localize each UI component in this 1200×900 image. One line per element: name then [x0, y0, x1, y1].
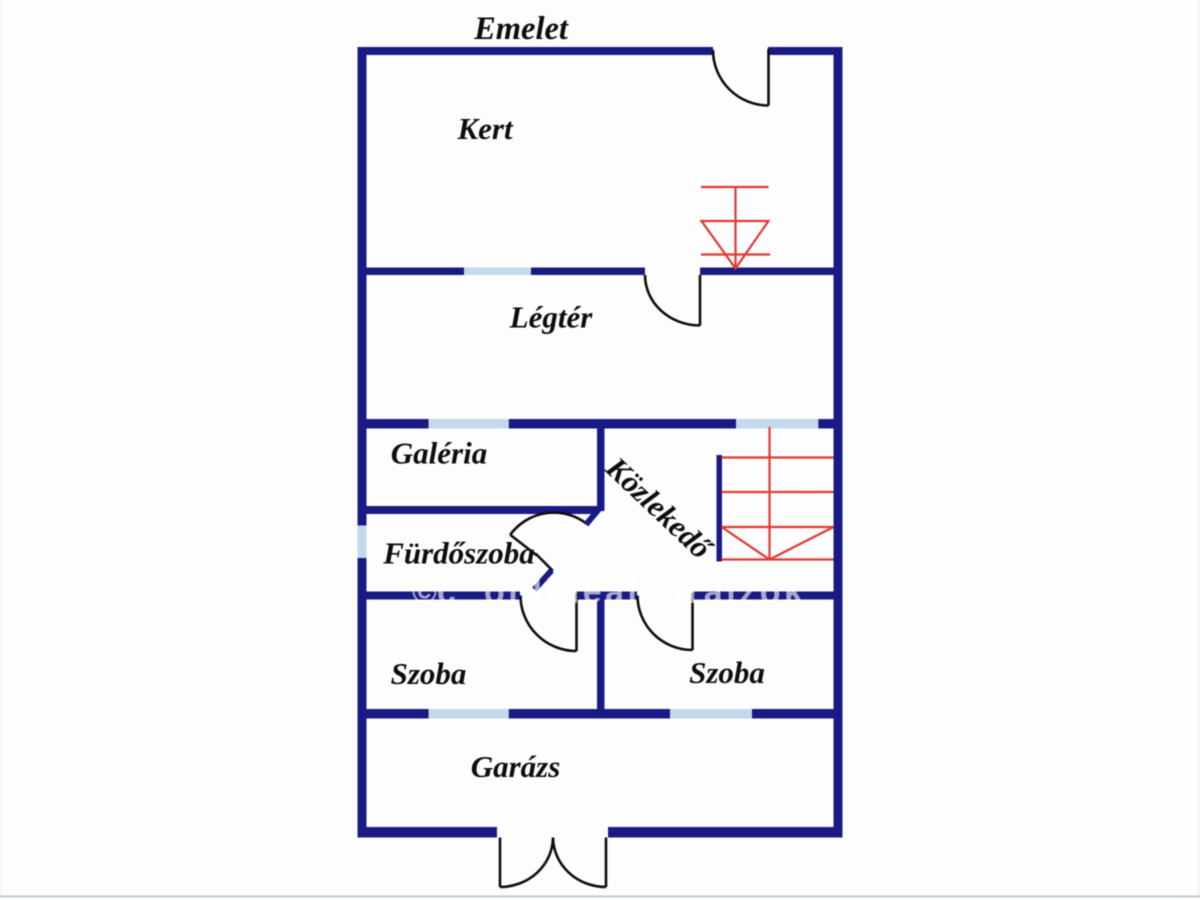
- svg-text:Emelet: Emelet: [473, 11, 569, 47]
- svg-text:onlinealaprajzok: onlinealaprajzok: [484, 573, 806, 611]
- svg-text:Fürdőszoba: Fürdőszoba: [382, 536, 535, 571]
- svg-text:Légtér: Légtér: [509, 300, 594, 335]
- svg-text:Szoba: Szoba: [391, 656, 467, 691]
- svg-text:©c: ©c: [412, 573, 456, 611]
- svg-text:Szoba: Szoba: [689, 655, 765, 690]
- svg-text:Galéria: Galéria: [391, 436, 487, 471]
- svg-text:Kert: Kert: [456, 111, 514, 146]
- svg-text:Garázs: Garázs: [471, 749, 561, 784]
